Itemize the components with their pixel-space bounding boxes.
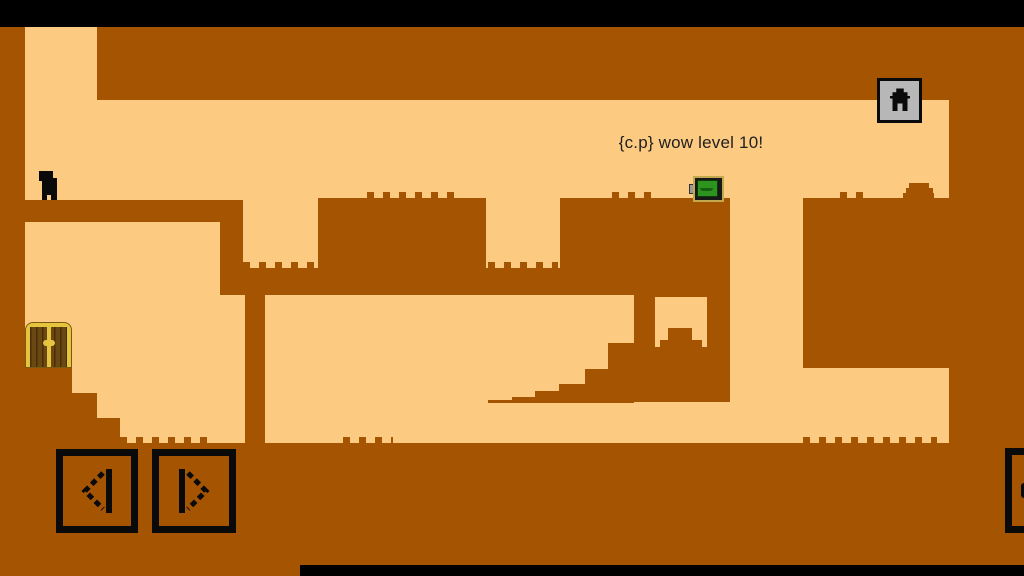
arrow-right-icon xyxy=(176,467,212,515)
home-button[interactable] xyxy=(877,78,922,123)
door-step-3 xyxy=(0,418,120,443)
terrain-serration xyxy=(120,437,208,443)
bottom-letterbox xyxy=(300,565,1024,576)
right-wall xyxy=(949,27,1024,443)
hang-stair-6 xyxy=(608,343,634,403)
exit-door xyxy=(25,322,72,368)
hang-stair-4 xyxy=(559,384,585,403)
window-rock-base xyxy=(660,340,702,347)
lower-column xyxy=(245,295,265,443)
door-step-1 xyxy=(0,368,72,393)
door-step-2 xyxy=(0,393,97,418)
center-block xyxy=(318,198,486,295)
hang-stair-2 xyxy=(512,397,535,403)
player-leg-gap xyxy=(47,195,51,200)
move-right-button[interactable] xyxy=(152,449,236,533)
home-icon xyxy=(885,86,915,116)
right-block xyxy=(803,198,950,368)
terrain-serration xyxy=(367,192,460,198)
top-letterbox xyxy=(0,0,1024,27)
arrow-left-icon xyxy=(79,467,115,515)
hang-stair-1 xyxy=(488,400,512,403)
hang-stair-5 xyxy=(585,369,608,403)
terrain-serration xyxy=(243,262,317,268)
battery-item xyxy=(689,176,722,200)
hang-stair-3 xyxy=(535,391,559,403)
top-mass xyxy=(97,27,949,100)
window-rock-top xyxy=(668,328,692,340)
level-message: {c.p} wow level 10! xyxy=(561,133,821,153)
terrain-serration xyxy=(488,262,558,268)
battery-screen-squiggle xyxy=(700,188,713,191)
mesa-rock-base xyxy=(903,193,934,198)
terrain-serration xyxy=(803,437,937,443)
upper-column xyxy=(220,222,243,272)
game-stage: {c.p} wow level 10! xyxy=(0,0,1024,576)
move-left-button[interactable] xyxy=(56,449,138,533)
door-handle-stem xyxy=(47,344,51,354)
terrain-serration xyxy=(612,192,658,198)
terrain-serration xyxy=(840,192,864,198)
terrain-serration xyxy=(343,437,393,443)
battery-block xyxy=(560,198,730,295)
partial-right-button[interactable] xyxy=(1005,448,1024,533)
spawn-platform xyxy=(0,200,243,222)
player-character xyxy=(39,170,58,200)
